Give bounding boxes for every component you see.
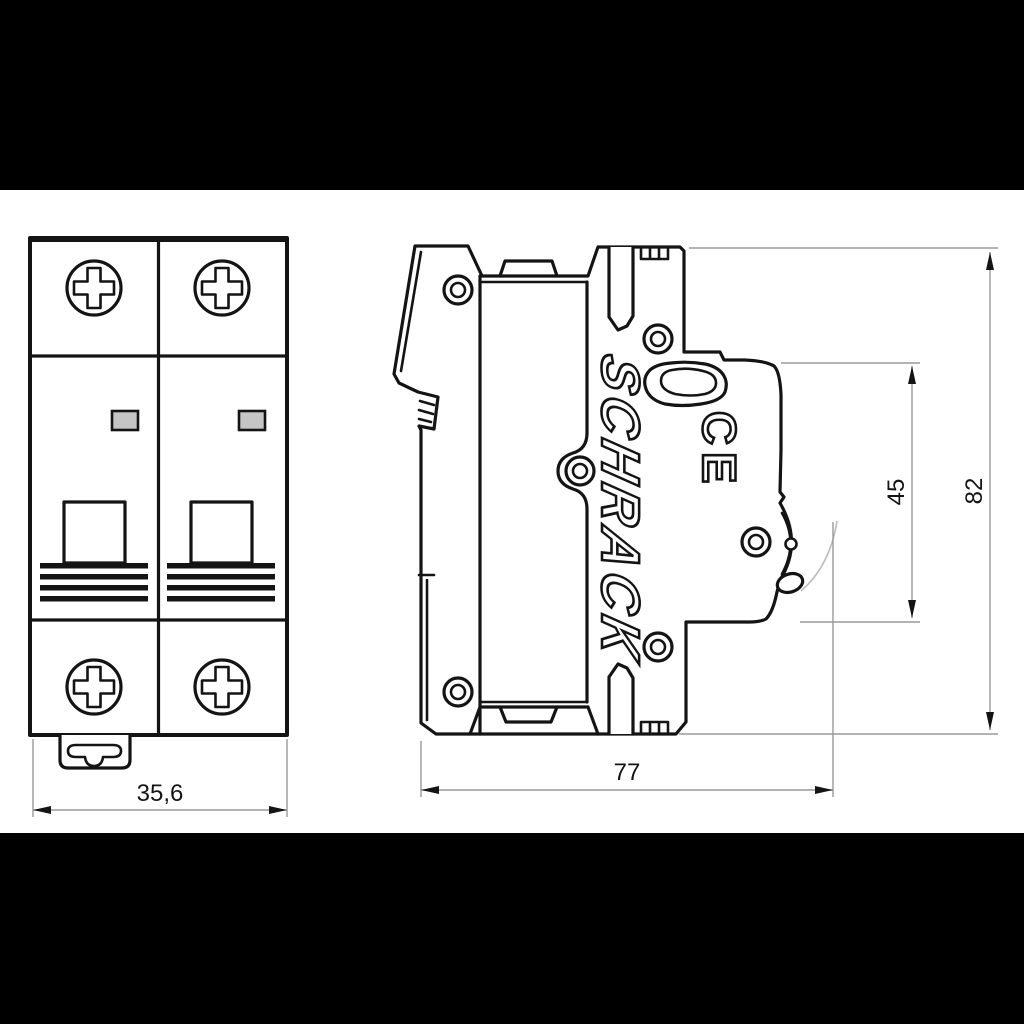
terminal-screw-bottom-left <box>67 660 121 714</box>
drawing-canvas: SCHRACK CE 35,6 77 45 82 <box>0 0 1024 1024</box>
rivet-center <box>566 457 594 485</box>
technical-drawing: SCHRACK CE 35,6 77 45 82 <box>0 0 1024 1024</box>
front-view <box>30 238 287 768</box>
terminal-screw-top-right <box>195 261 249 315</box>
dimension-label-depth: 77 <box>614 759 641 786</box>
rivet-top-left <box>444 276 472 304</box>
status-indicator-right <box>239 411 265 430</box>
busbar-slot-top <box>609 247 633 330</box>
dimension-label-overall-height: 82 <box>961 478 988 505</box>
rivet-front <box>742 528 770 556</box>
sealing-eye <box>645 362 727 405</box>
lever-pivot-dot <box>786 539 797 550</box>
dimension-label-front-width: 35,6 <box>137 780 184 807</box>
din-clip-tab <box>60 735 130 768</box>
dimension-label-upper-height: 45 <box>883 479 910 506</box>
ce-mark: CE <box>693 411 746 490</box>
rivet-bottom-left <box>444 678 472 706</box>
terminal-screw-top-left <box>67 261 121 315</box>
status-indicator-left <box>112 411 138 430</box>
toggle-handle-right <box>191 502 252 563</box>
terminal-screw-bottom-right <box>195 660 249 714</box>
busbar-slot-bottom <box>609 664 633 734</box>
toggle-handle-left <box>64 502 125 563</box>
rivet-top-right <box>644 325 672 353</box>
brand-logo-text: SCHRACK <box>590 349 651 669</box>
